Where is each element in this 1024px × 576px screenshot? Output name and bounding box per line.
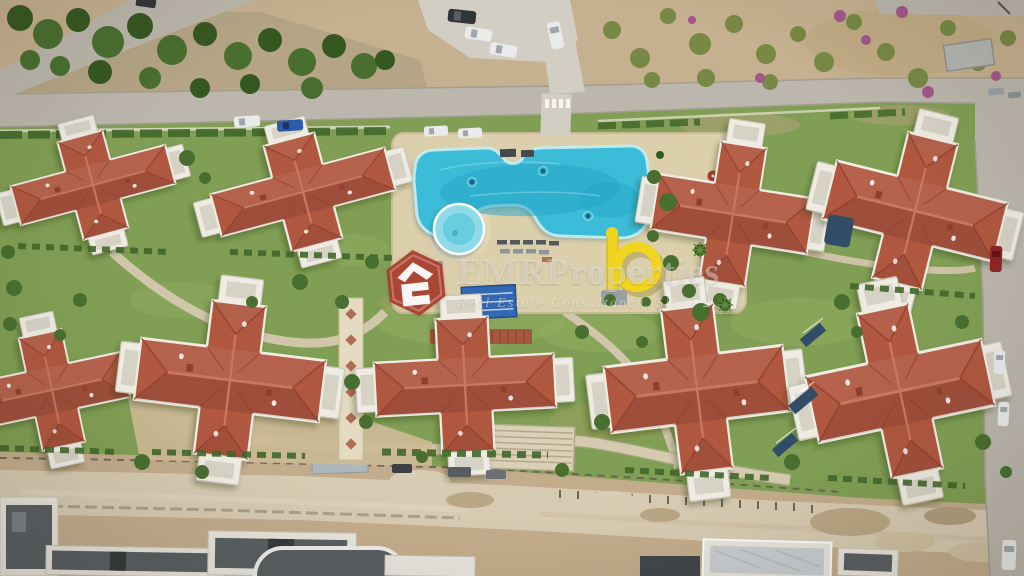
photo-grain [0,0,1024,576]
aerial-photo: EMRProperties Real Estate Consultancy, S… [0,0,1024,576]
